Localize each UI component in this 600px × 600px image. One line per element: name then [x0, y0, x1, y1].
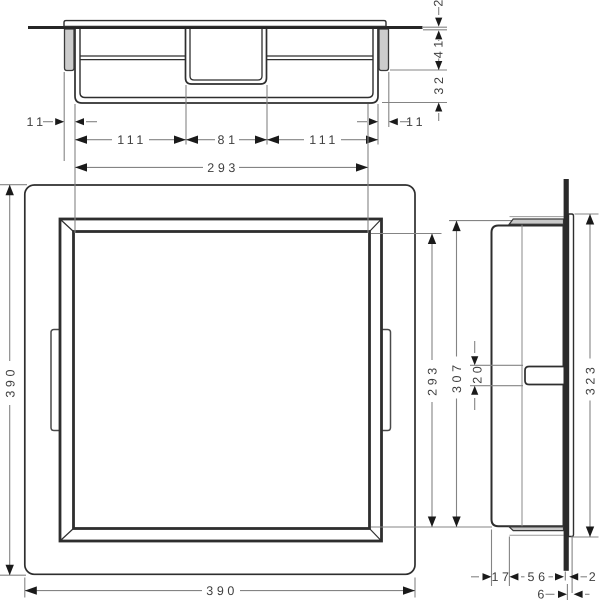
svg-text:323: 323 — [584, 364, 598, 396]
svg-text:390: 390 — [206, 584, 238, 598]
svg-text:81: 81 — [218, 133, 239, 147]
svg-text:390: 390 — [3, 366, 17, 398]
svg-text:111: 111 — [117, 133, 147, 147]
svg-text:56: 56 — [528, 570, 549, 584]
svg-text:11: 11 — [27, 115, 47, 129]
svg-text:293: 293 — [425, 364, 439, 396]
svg-text:2: 2 — [589, 570, 600, 584]
svg-text:293: 293 — [207, 161, 239, 175]
svg-text:2: 2 — [432, 0, 446, 7]
svg-text:32: 32 — [432, 73, 446, 94]
svg-text:307: 307 — [450, 361, 464, 393]
svg-text:111: 111 — [309, 133, 339, 147]
svg-text:17: 17 — [491, 570, 512, 584]
svg-text:20: 20 — [470, 363, 484, 384]
svg-text:41: 41 — [432, 37, 446, 58]
svg-text:11: 11 — [406, 115, 426, 129]
